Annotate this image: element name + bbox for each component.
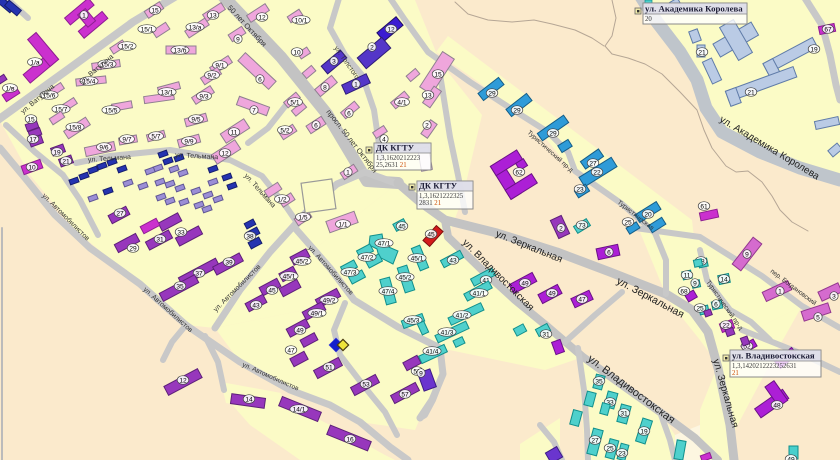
svg-text:1/а: 1/а (30, 59, 39, 66)
svg-text:12: 12 (221, 150, 229, 157)
svg-text:41/4: 41/4 (426, 348, 439, 355)
svg-text:48: 48 (773, 402, 781, 409)
svg-text:14/1: 14/1 (293, 406, 306, 413)
svg-text:45: 45 (427, 231, 435, 238)
svg-text:1: 1 (354, 81, 358, 88)
svg-text:23: 23 (618, 450, 626, 457)
svg-text:35: 35 (176, 283, 184, 290)
svg-text:19: 19 (640, 428, 648, 435)
svg-text:23: 23 (576, 186, 584, 193)
svg-text:45/2: 45/2 (296, 258, 309, 265)
svg-text:27: 27 (591, 437, 599, 444)
svg-text:10/1: 10/1 (295, 17, 308, 24)
svg-text:67: 67 (824, 26, 832, 33)
svg-text:25: 25 (624, 219, 632, 226)
svg-text:1/5: 1/5 (298, 214, 307, 221)
svg-text:5/2: 5/2 (280, 127, 289, 134)
svg-text:9/6: 9/6 (99, 144, 108, 151)
svg-text:8: 8 (323, 84, 327, 91)
svg-text:15/5: 15/5 (105, 107, 118, 114)
svg-text:53: 53 (362, 381, 370, 388)
svg-text:1/2: 1/2 (277, 196, 286, 203)
svg-text:6: 6 (714, 301, 718, 308)
svg-text:37: 37 (195, 270, 203, 277)
svg-text:39: 39 (225, 259, 233, 266)
svg-text:19: 19 (810, 46, 818, 53)
svg-text:16: 16 (346, 436, 354, 443)
svg-text:31: 31 (620, 410, 628, 417)
svg-text:47/2: 47/2 (361, 254, 374, 261)
svg-text:15/8: 15/8 (69, 124, 82, 131)
svg-text:43: 43 (449, 257, 457, 264)
svg-text:6: 6 (607, 249, 611, 256)
svg-text:13: 13 (209, 12, 217, 19)
svg-text:49: 49 (296, 327, 304, 334)
svg-text:22: 22 (593, 169, 601, 176)
svg-text:15: 15 (434, 71, 442, 78)
svg-text:1,3,1620212223: 1,3,1620212223 (376, 155, 421, 162)
svg-text:45/1: 45/1 (411, 255, 424, 262)
svg-text:13: 13 (424, 92, 432, 99)
svg-text:1: 1 (778, 288, 782, 295)
svg-text:9/5: 9/5 (191, 116, 200, 123)
svg-text:47/1: 47/1 (378, 240, 391, 247)
svg-text:15: 15 (27, 116, 35, 123)
svg-text:12: 12 (387, 26, 395, 33)
svg-text:9/9: 9/9 (184, 138, 193, 145)
svg-text:9/3: 9/3 (199, 93, 208, 100)
svg-text:41/3: 41/3 (441, 329, 454, 336)
svg-text:45/1: 45/1 (283, 273, 296, 280)
svg-text:5: 5 (816, 314, 820, 321)
svg-text:12: 12 (179, 377, 187, 384)
svg-text:62: 62 (515, 169, 523, 176)
svg-text:49: 49 (787, 456, 795, 460)
svg-text:13/1: 13/1 (161, 89, 174, 96)
svg-text:2: 2 (425, 122, 429, 129)
svg-text:11: 11 (684, 272, 691, 279)
svg-text:6: 6 (347, 110, 351, 117)
svg-text:1: 1 (82, 12, 86, 19)
svg-text:9: 9 (419, 370, 423, 377)
svg-text:61: 61 (700, 203, 708, 210)
svg-text:45/2: 45/2 (399, 274, 412, 281)
svg-text:49/2: 49/2 (323, 297, 336, 304)
svg-text:27: 27 (116, 210, 124, 217)
svg-text:41/2: 41/2 (456, 312, 469, 319)
svg-text:29: 29 (549, 130, 557, 137)
svg-text:2: 2 (559, 225, 563, 232)
svg-text:25: 25 (606, 445, 614, 452)
svg-text:45: 45 (398, 223, 406, 230)
svg-text:29: 29 (513, 107, 521, 114)
svg-text:1,3,1420212223252631: 1,3,1420212223252631 (732, 363, 797, 370)
svg-text:29: 29 (129, 245, 137, 252)
svg-text:9: 9 (745, 251, 749, 258)
svg-text:15/2: 15/2 (121, 43, 134, 50)
svg-text:73: 73 (578, 222, 586, 229)
svg-text:ул. Владивостокская: ул. Владивостокская (732, 351, 815, 361)
svg-text:1/1: 1/1 (338, 221, 347, 228)
svg-text:15/1: 15/1 (141, 26, 154, 33)
svg-text:7: 7 (252, 107, 256, 114)
svg-text:38: 38 (246, 233, 254, 240)
svg-text:9: 9 (693, 280, 697, 287)
svg-text:9: 9 (236, 36, 240, 43)
svg-text:14: 14 (245, 396, 253, 403)
svg-text:31: 31 (542, 331, 550, 338)
svg-text:49/1: 49/1 (311, 310, 324, 317)
svg-text:6: 6 (314, 122, 318, 129)
svg-text:3: 3 (332, 58, 336, 65)
svg-text:5/7: 5/7 (151, 133, 160, 140)
svg-text:5/1: 5/1 (290, 99, 299, 106)
svg-text:25,2631 21: 25,2631 21 (376, 162, 407, 169)
svg-text:21: 21 (62, 158, 70, 165)
svg-text:47/4: 47/4 (382, 288, 395, 295)
svg-text:17: 17 (29, 136, 37, 143)
svg-text:20: 20 (644, 211, 652, 218)
svg-text:21: 21 (747, 89, 755, 96)
svg-text:29: 29 (488, 90, 496, 97)
svg-text:13/б: 13/б (174, 46, 187, 54)
svg-text:12: 12 (258, 14, 266, 21)
svg-text:43: 43 (252, 302, 260, 309)
svg-text:1: 1 (346, 169, 350, 176)
svg-text:21: 21 (698, 49, 706, 56)
svg-text:45: 45 (268, 287, 276, 294)
svg-text:1/в: 1/в (5, 85, 14, 92)
svg-text:35: 35 (595, 378, 603, 385)
svg-text:ул. Академика Королева: ул. Академика Королева (645, 4, 743, 14)
svg-text:6: 6 (258, 76, 262, 83)
svg-text:9/7: 9/7 (122, 136, 131, 143)
svg-text:33: 33 (177, 229, 185, 236)
svg-text:13/а: 13/а (189, 24, 202, 31)
svg-text:51: 51 (325, 364, 333, 371)
svg-text:2831 21: 2831 21 (419, 200, 441, 207)
svg-text:11: 11 (231, 129, 238, 136)
svg-text:47/3: 47/3 (344, 269, 357, 276)
svg-text:14: 14 (720, 276, 728, 283)
svg-text:2: 2 (370, 44, 374, 51)
svg-text:41/1: 41/1 (473, 290, 486, 297)
svg-text:4/1: 4/1 (397, 99, 406, 106)
svg-text:47: 47 (287, 347, 295, 354)
svg-text:9/2: 9/2 (207, 72, 216, 79)
svg-text:ДК КГТУ: ДК КГТУ (376, 143, 415, 153)
svg-text:10: 10 (28, 164, 36, 171)
svg-text:68: 68 (680, 288, 688, 295)
svg-text:21: 21 (732, 370, 739, 377)
svg-text:25: 25 (696, 305, 704, 312)
svg-text:15: 15 (151, 7, 159, 14)
svg-text:49: 49 (521, 280, 529, 287)
svg-text:19: 19 (53, 149, 61, 156)
svg-text:57: 57 (401, 391, 409, 398)
svg-text:20: 20 (645, 16, 652, 23)
svg-text:31: 31 (156, 236, 164, 243)
svg-text:3: 3 (832, 293, 836, 300)
svg-text:ДК КГТУ: ДК КГТУ (419, 181, 458, 191)
svg-text:10: 10 (293, 49, 301, 56)
svg-text:1,3,1621222325: 1,3,1621222325 (419, 193, 464, 200)
svg-text:47: 47 (578, 296, 586, 303)
svg-text:49: 49 (548, 290, 556, 297)
